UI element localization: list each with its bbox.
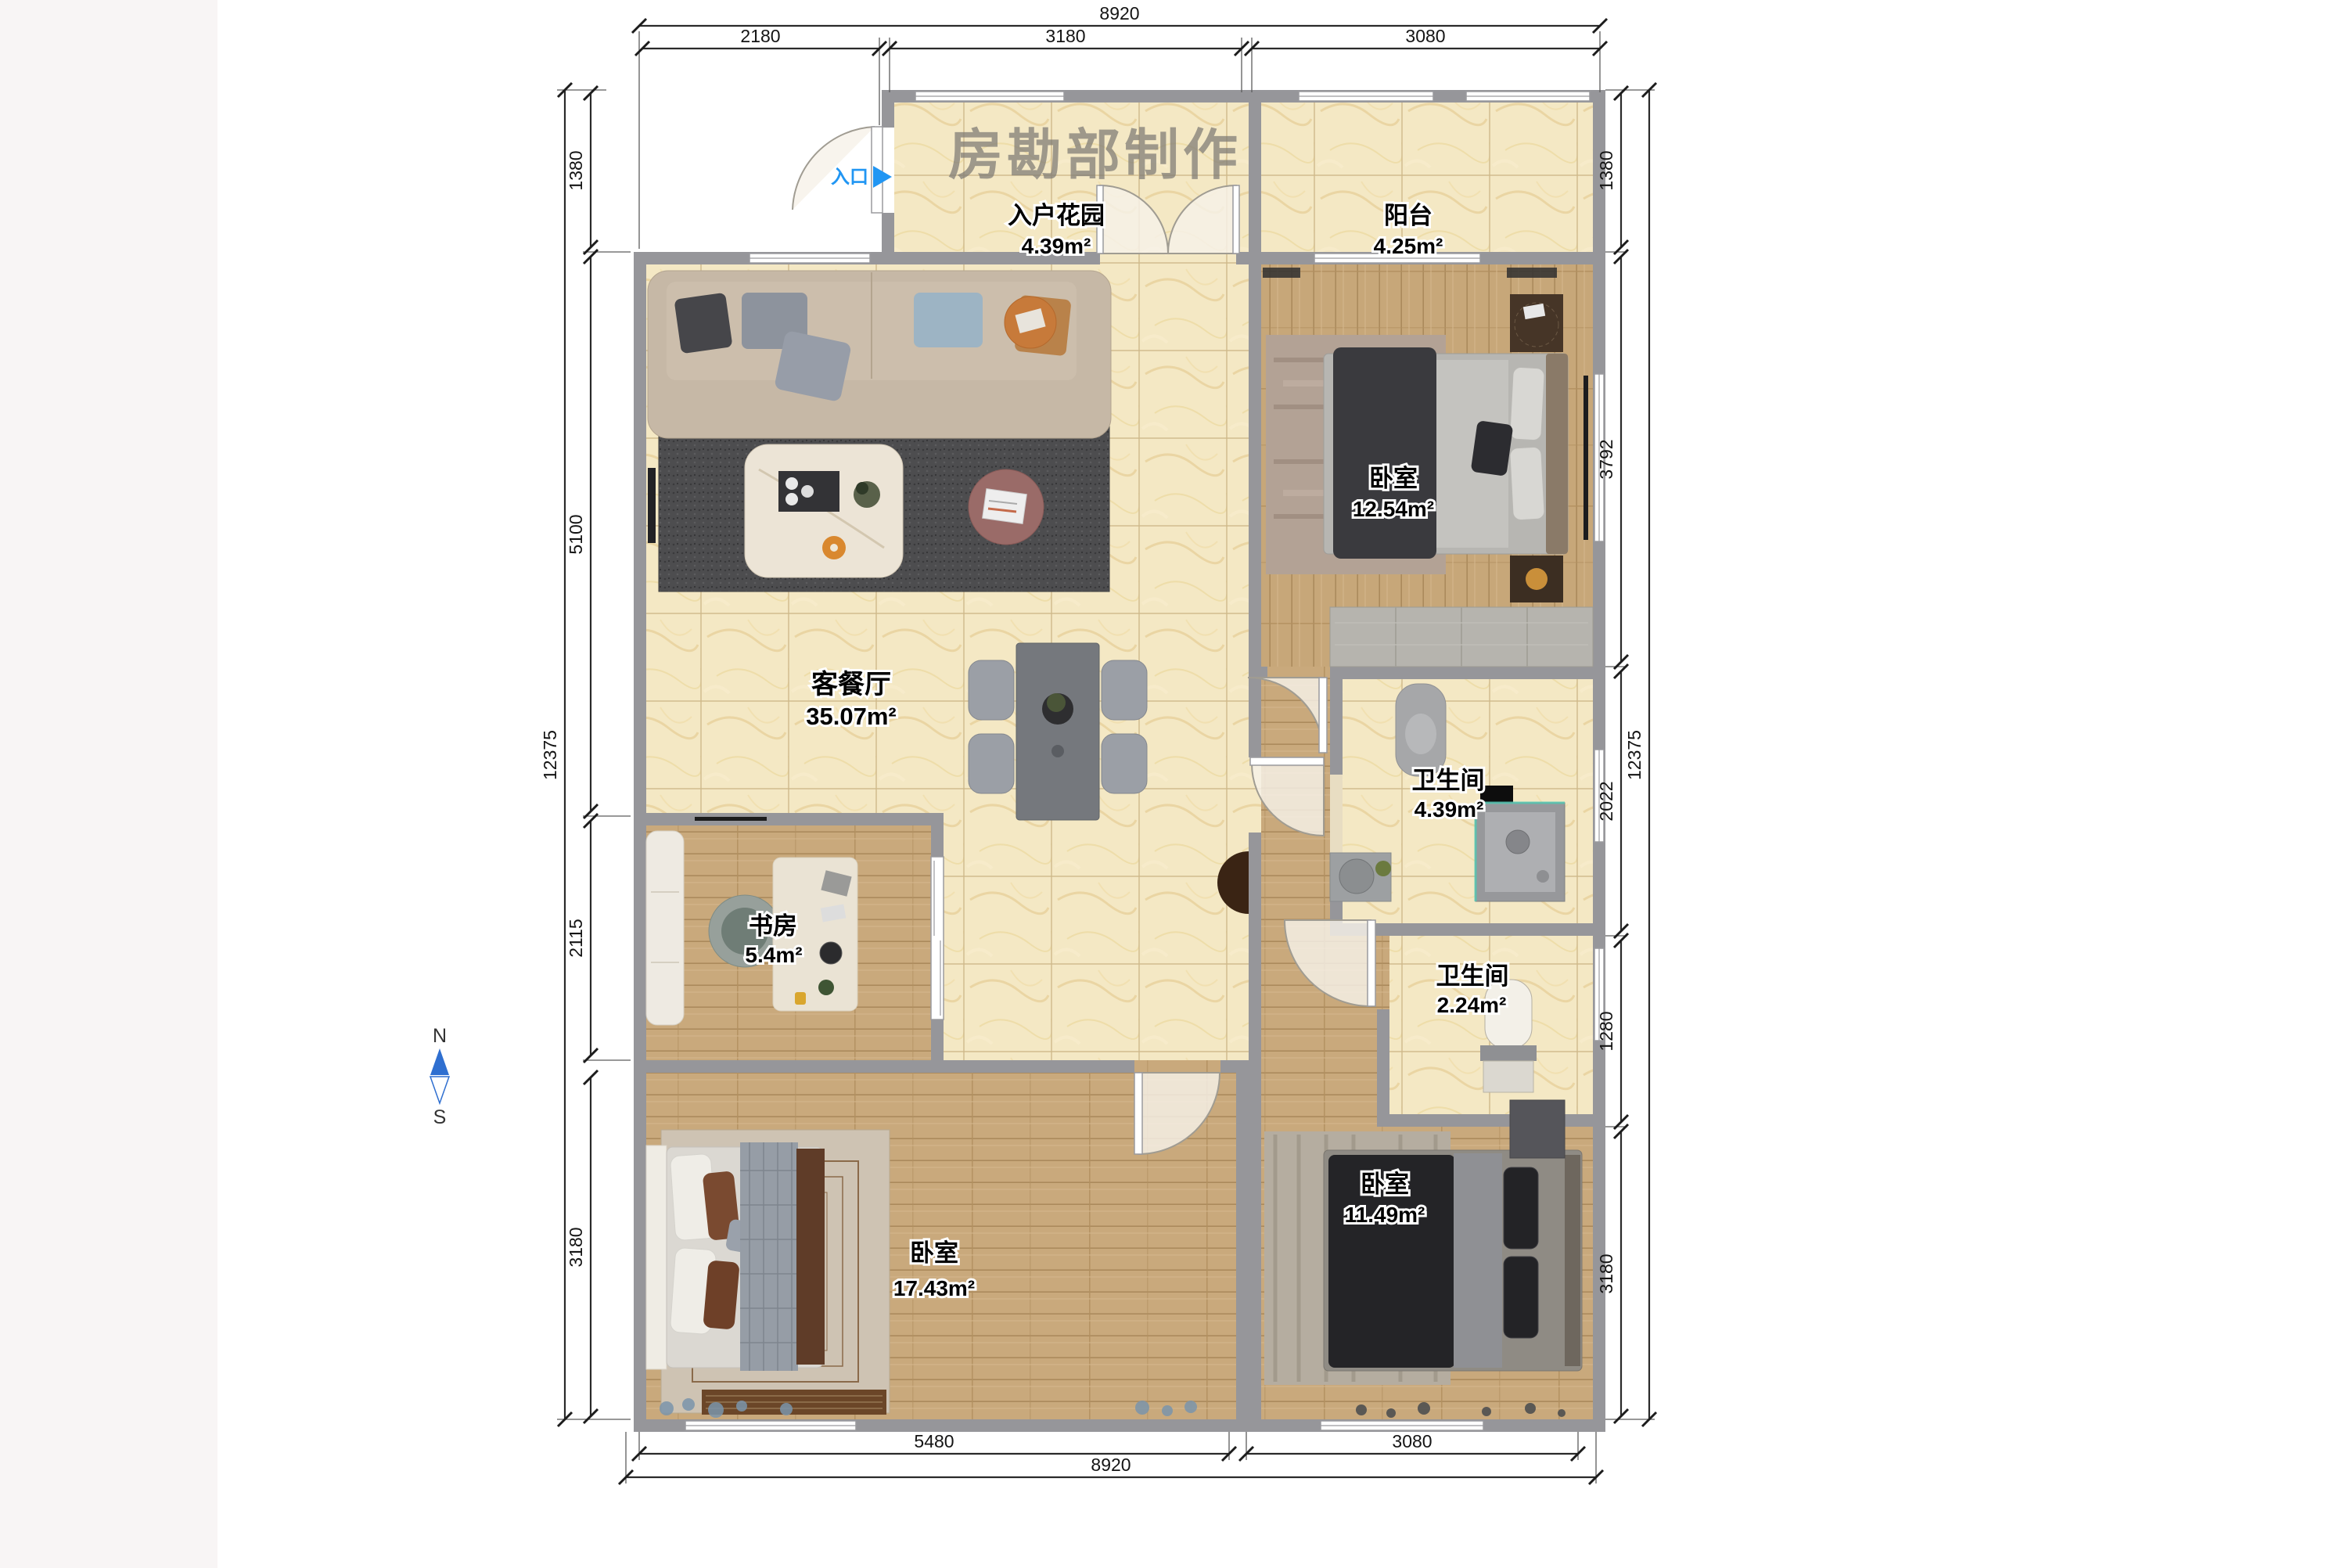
duvet xyxy=(1333,347,1436,559)
pillow xyxy=(1471,420,1514,477)
dim-right-seg-5: 3180 xyxy=(1596,1253,1616,1293)
pillow xyxy=(914,293,983,347)
doorway-patch xyxy=(1377,936,1389,1009)
sink-basin xyxy=(1339,859,1374,894)
bathroom-main-area: 4.39m² xyxy=(1415,797,1484,822)
dim-bottom-seg-1: 5480 xyxy=(914,1431,954,1451)
study-name: 书房 xyxy=(749,912,797,940)
entrance-label: 入口 xyxy=(831,167,868,188)
decor xyxy=(1263,268,1300,278)
dim-top-seg-3: 3080 xyxy=(1405,26,1445,46)
sliding-door-study xyxy=(931,857,944,1020)
pillow xyxy=(1510,367,1545,441)
bathroom-main-name: 卫生间 xyxy=(1412,767,1485,794)
dim-right-seg-3: 2022 xyxy=(1596,781,1616,821)
page-left-band xyxy=(0,0,217,1568)
bedroom-right-furniture xyxy=(1264,1100,1582,1418)
dining-chair xyxy=(1102,660,1147,720)
dim-bottom-total: 8920 xyxy=(1091,1455,1131,1475)
doorway-patch xyxy=(1330,775,1343,853)
floorplan-page: 入户花园 4.39m² 阳台 4.25m² 客餐厅 35.07m² 卧室 12.… xyxy=(0,0,2351,1568)
balcony-area: 4.25m² xyxy=(1374,234,1443,258)
bedroom-left-name: 卧室 xyxy=(910,1239,958,1267)
dim-left-total: 12375 xyxy=(540,730,560,780)
compass-north-label: N xyxy=(433,1025,447,1047)
dim-top-seg-2: 3180 xyxy=(1045,26,1085,46)
blanket xyxy=(1454,1153,1502,1368)
dim-right-seg-4: 1280 xyxy=(1596,1011,1616,1051)
dim-right-total: 12375 xyxy=(1624,730,1645,780)
dining-table xyxy=(1016,643,1099,820)
dim-left-seg-1: 1380 xyxy=(566,150,586,190)
entry-garden-area: 4.39m² xyxy=(1022,234,1091,258)
headboard xyxy=(1565,1155,1580,1366)
balcony-name: 阳台 xyxy=(1384,202,1433,229)
dresser xyxy=(1510,1100,1565,1158)
dim-right-seg-2: 3792 xyxy=(1596,439,1616,479)
pillow xyxy=(1504,1167,1538,1249)
pillow xyxy=(1510,447,1545,520)
dim-right-seg-1: 1380 xyxy=(1596,150,1616,190)
headboard xyxy=(646,1145,667,1369)
curtain-rod xyxy=(695,817,767,821)
living-dining-name: 客餐厅 xyxy=(811,669,891,699)
watermark-text: 房勘部制作 xyxy=(948,125,1242,186)
floorplan-canvas: 入户花园 4.39m² 阳台 4.25m² 客餐厅 35.07m² 卧室 12.… xyxy=(0,0,2351,1568)
side-table xyxy=(969,469,1044,545)
bathroom-small-area: 2.24m² xyxy=(1437,993,1507,1017)
living-dining-floor-extension xyxy=(944,813,1249,1060)
tv-panel xyxy=(648,468,656,543)
dim-left-seg-4: 3180 xyxy=(566,1227,586,1267)
dim-top-seg-1: 2180 xyxy=(740,26,780,46)
pouf xyxy=(1005,297,1056,348)
bedroom-master-name: 卧室 xyxy=(1369,465,1418,492)
nightstand xyxy=(1510,294,1563,352)
pillow xyxy=(674,293,732,354)
compass-south-label: S xyxy=(433,1106,447,1128)
dim-left-seg-2: 5100 xyxy=(566,514,586,554)
coffee-table xyxy=(745,444,903,577)
bedroom-right-name: 卧室 xyxy=(1361,1171,1409,1198)
curtain xyxy=(1584,376,1588,540)
doorway-patch xyxy=(1134,1060,1220,1073)
headboard xyxy=(1546,354,1568,554)
blanket xyxy=(796,1149,825,1365)
balcony-floor xyxy=(1261,102,1593,252)
bedroom-right-area: 11.49m² xyxy=(1345,1203,1425,1227)
sofa xyxy=(648,271,1111,438)
compass: N S xyxy=(430,1025,449,1128)
dim-left-seg-3: 2115 xyxy=(566,919,586,957)
pillow xyxy=(703,1260,739,1329)
bathroom-small-name: 卫生间 xyxy=(1436,962,1509,990)
dining-chair xyxy=(1102,734,1147,793)
dim-bottom-seg-2: 3080 xyxy=(1392,1431,1432,1451)
living-dining-area: 35.07m² xyxy=(806,703,896,730)
compass-south-needle-icon xyxy=(430,1077,449,1103)
bedroom-master-area: 12.54m² xyxy=(1353,497,1434,521)
pillow xyxy=(1504,1257,1538,1338)
compass-north-needle-icon xyxy=(430,1048,449,1075)
bedroom-left-area: 17.43m² xyxy=(893,1276,975,1300)
dining-chair xyxy=(969,660,1014,720)
study-bench xyxy=(646,831,684,1025)
study-area: 5.4m² xyxy=(745,943,802,967)
plant xyxy=(1375,861,1391,876)
dim-top-total: 8920 xyxy=(1099,3,1139,23)
decor xyxy=(1507,268,1557,278)
dining-chair xyxy=(969,734,1014,793)
entry-garden-name: 入户花园 xyxy=(1008,202,1105,229)
